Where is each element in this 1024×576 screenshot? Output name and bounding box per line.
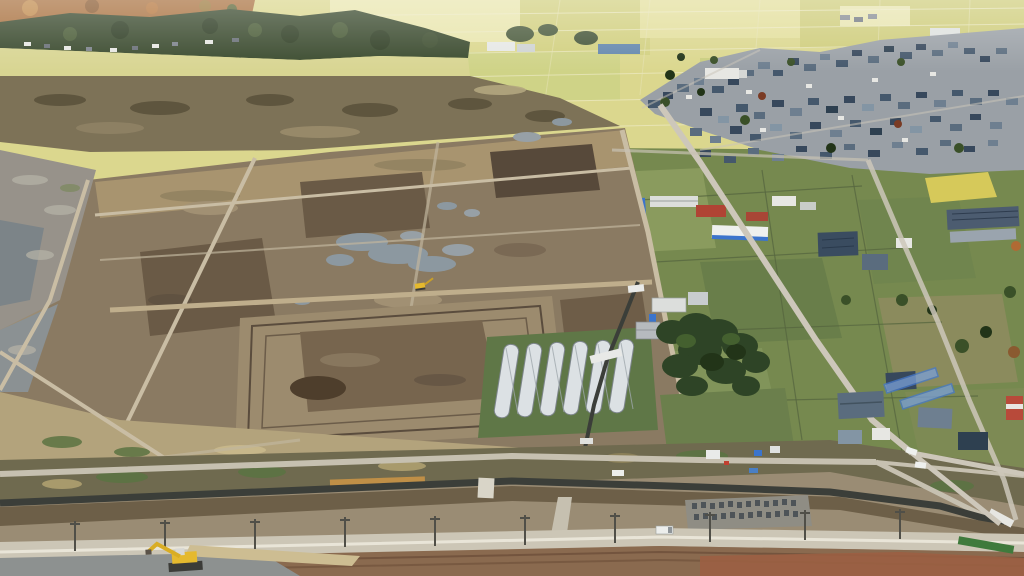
white-shed (652, 298, 686, 312)
white-container (706, 450, 720, 459)
aerial-photo: Oblique aerial drone photo of Japanese f… (0, 0, 1024, 576)
red-roof-building (696, 205, 726, 217)
soil-pile (290, 376, 346, 400)
cemetery (685, 495, 812, 530)
compound-truck (612, 470, 624, 476)
blue-car (749, 468, 758, 473)
aerial-photo-canvas: Oblique aerial drone photo of Japanese f… (0, 0, 1024, 576)
greenhouse-area (478, 327, 658, 438)
red-roof-building-2 (746, 212, 768, 221)
solar-roof-factory (947, 206, 1020, 230)
blue-container (754, 450, 762, 456)
blue-solar-house (818, 231, 859, 256)
red-bin (724, 461, 729, 465)
atmospheric-haze (0, 0, 1024, 72)
canal-crossing-bridge (477, 478, 494, 499)
